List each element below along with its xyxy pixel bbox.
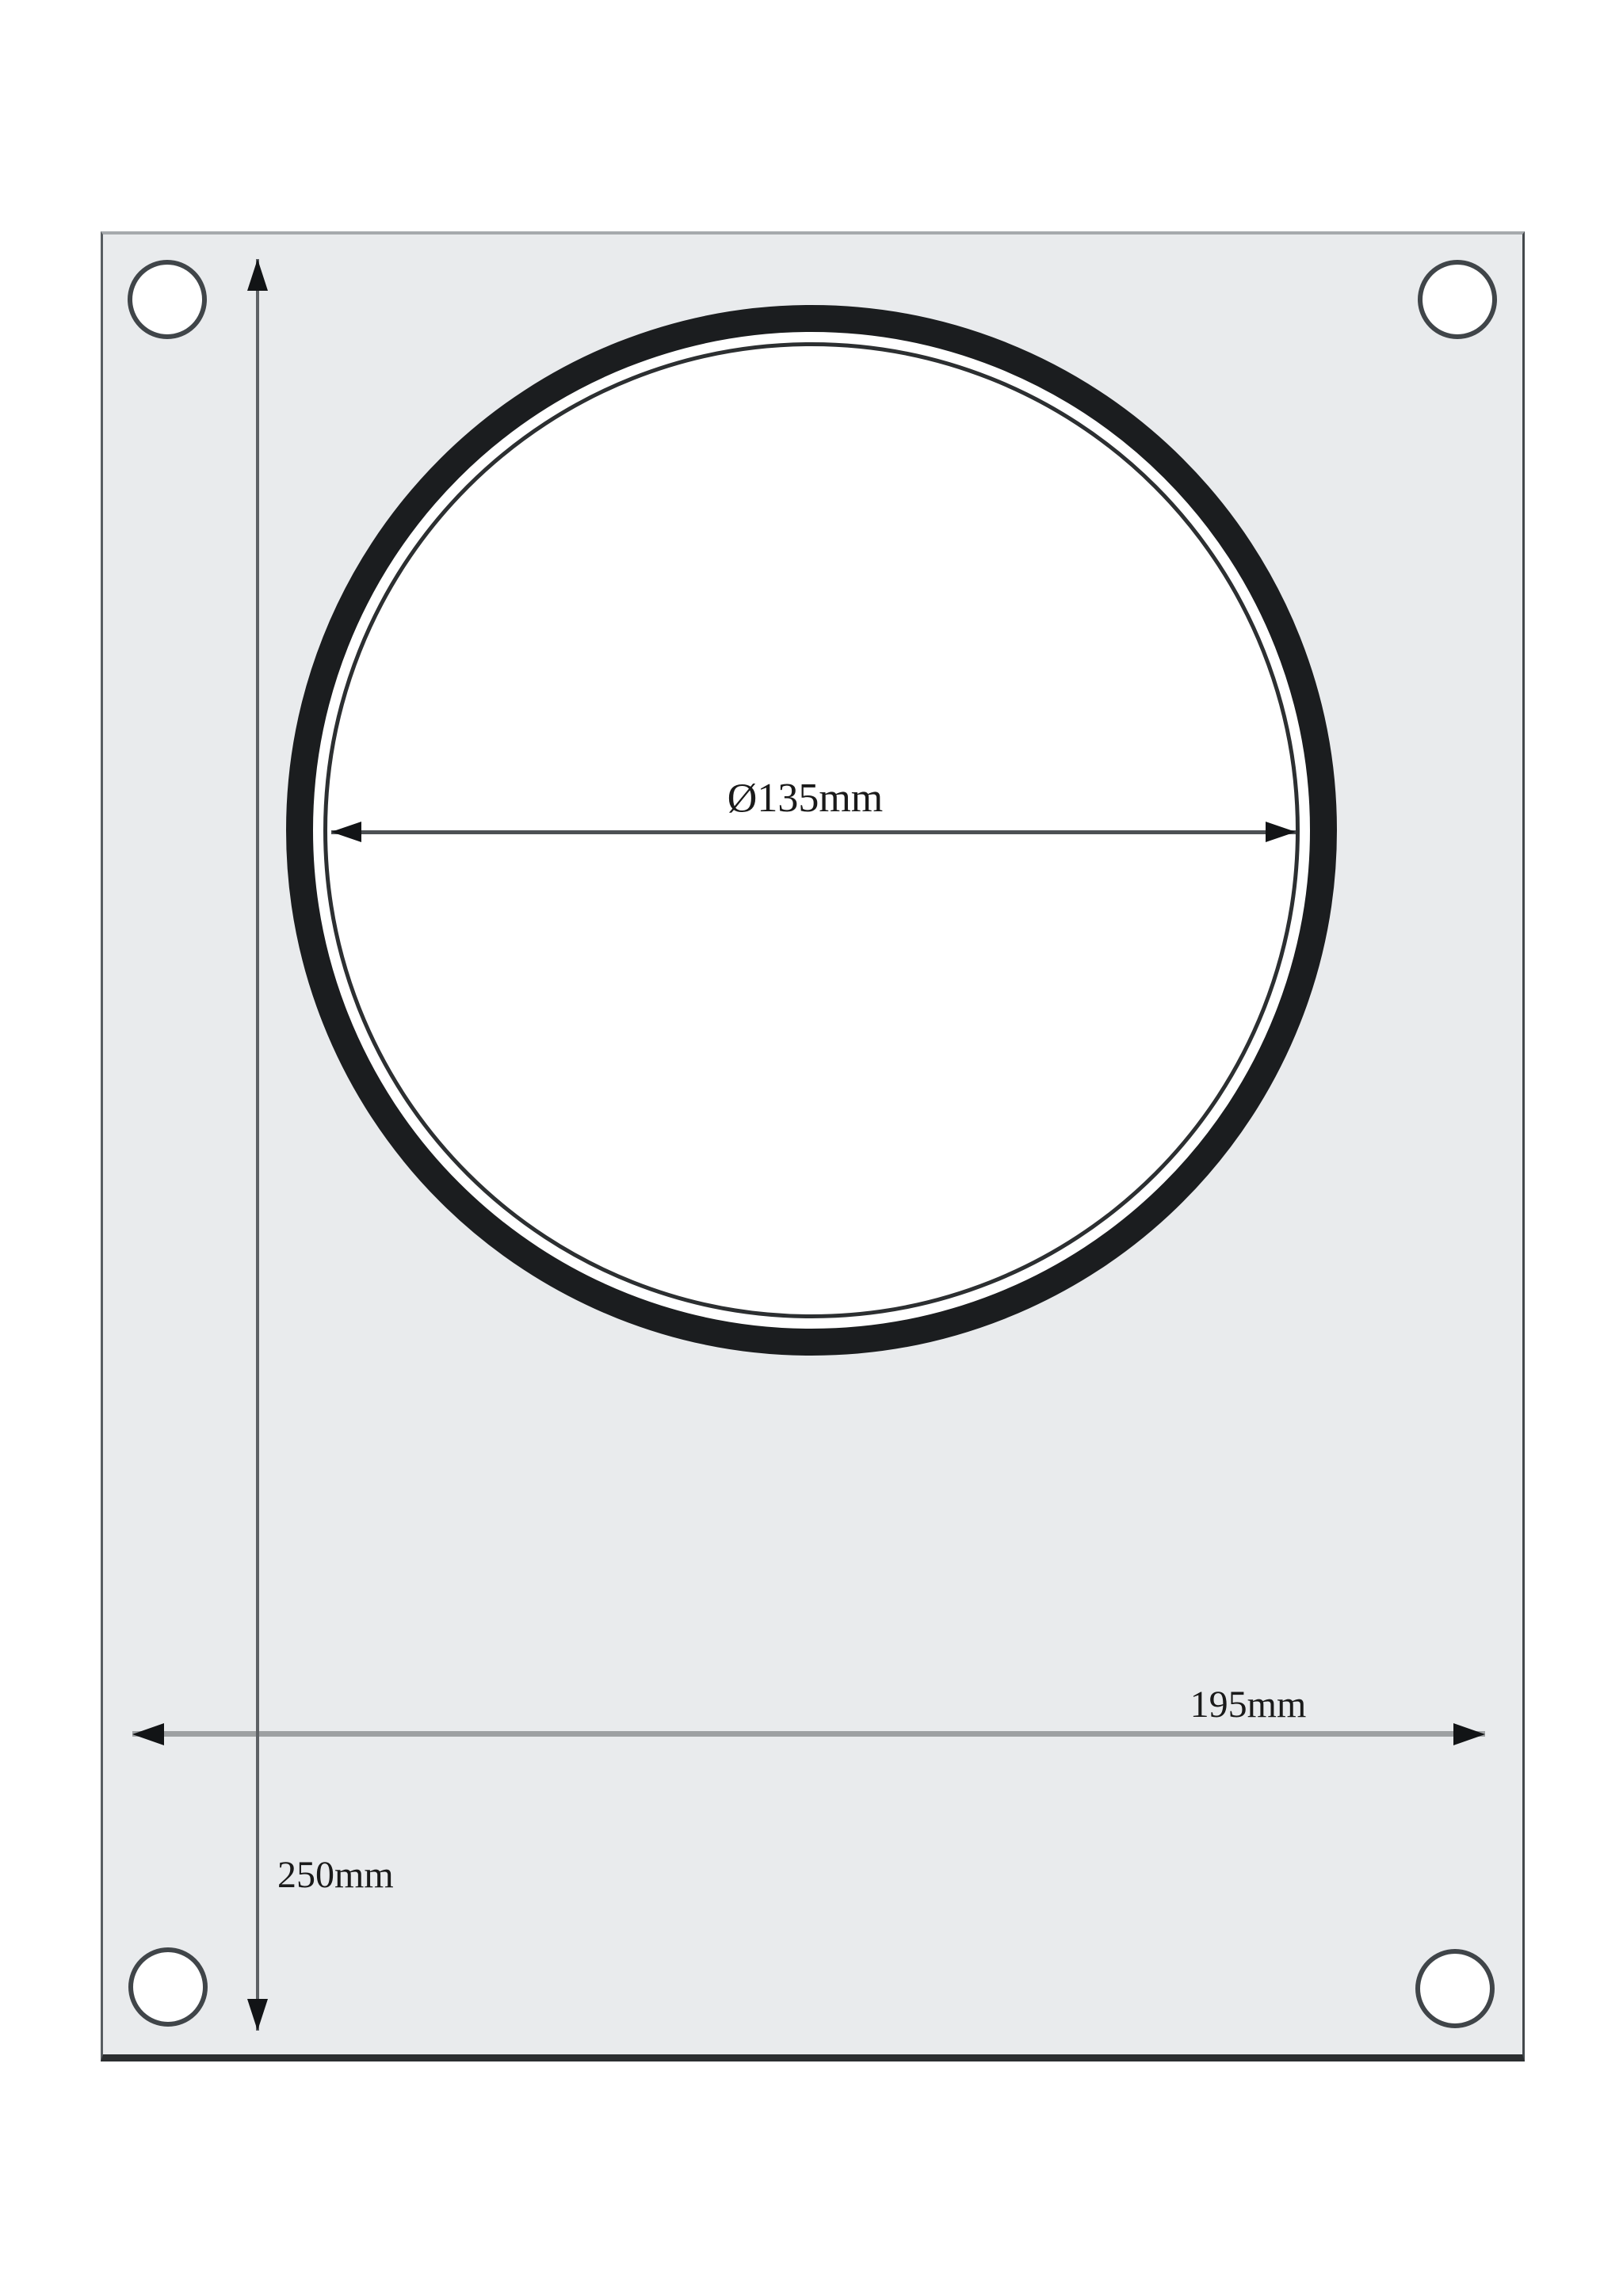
- corner-hole-top-left: [128, 260, 207, 339]
- corner-hole-bottom-right: [1415, 1949, 1495, 2028]
- drawing-canvas: Ø135mm 195mm 250mm: [0, 0, 1623, 2296]
- arrowhead-up-icon: [247, 259, 268, 291]
- arrowhead-right-icon: [1453, 1723, 1485, 1745]
- height-dimension-label: 250mm: [277, 1853, 394, 1897]
- arrowhead-down-icon: [247, 1999, 268, 2031]
- corner-hole-top-right: [1418, 260, 1497, 339]
- width-dimension-line: [132, 1731, 1485, 1737]
- matrix-plate: Ø135mm 195mm 250mm: [101, 231, 1525, 2061]
- arrowhead-right-icon: [1266, 822, 1296, 842]
- width-dimension-label: 195mm: [1129, 1683, 1367, 1727]
- arrowhead-left-icon: [331, 822, 361, 842]
- diameter-dimension-line: [331, 830, 1296, 834]
- corner-hole-bottom-left: [128, 1947, 208, 2027]
- height-dimension-line: [256, 259, 259, 2031]
- diameter-dimension-label: Ø135mm: [607, 776, 1003, 822]
- arrowhead-left-icon: [132, 1723, 164, 1745]
